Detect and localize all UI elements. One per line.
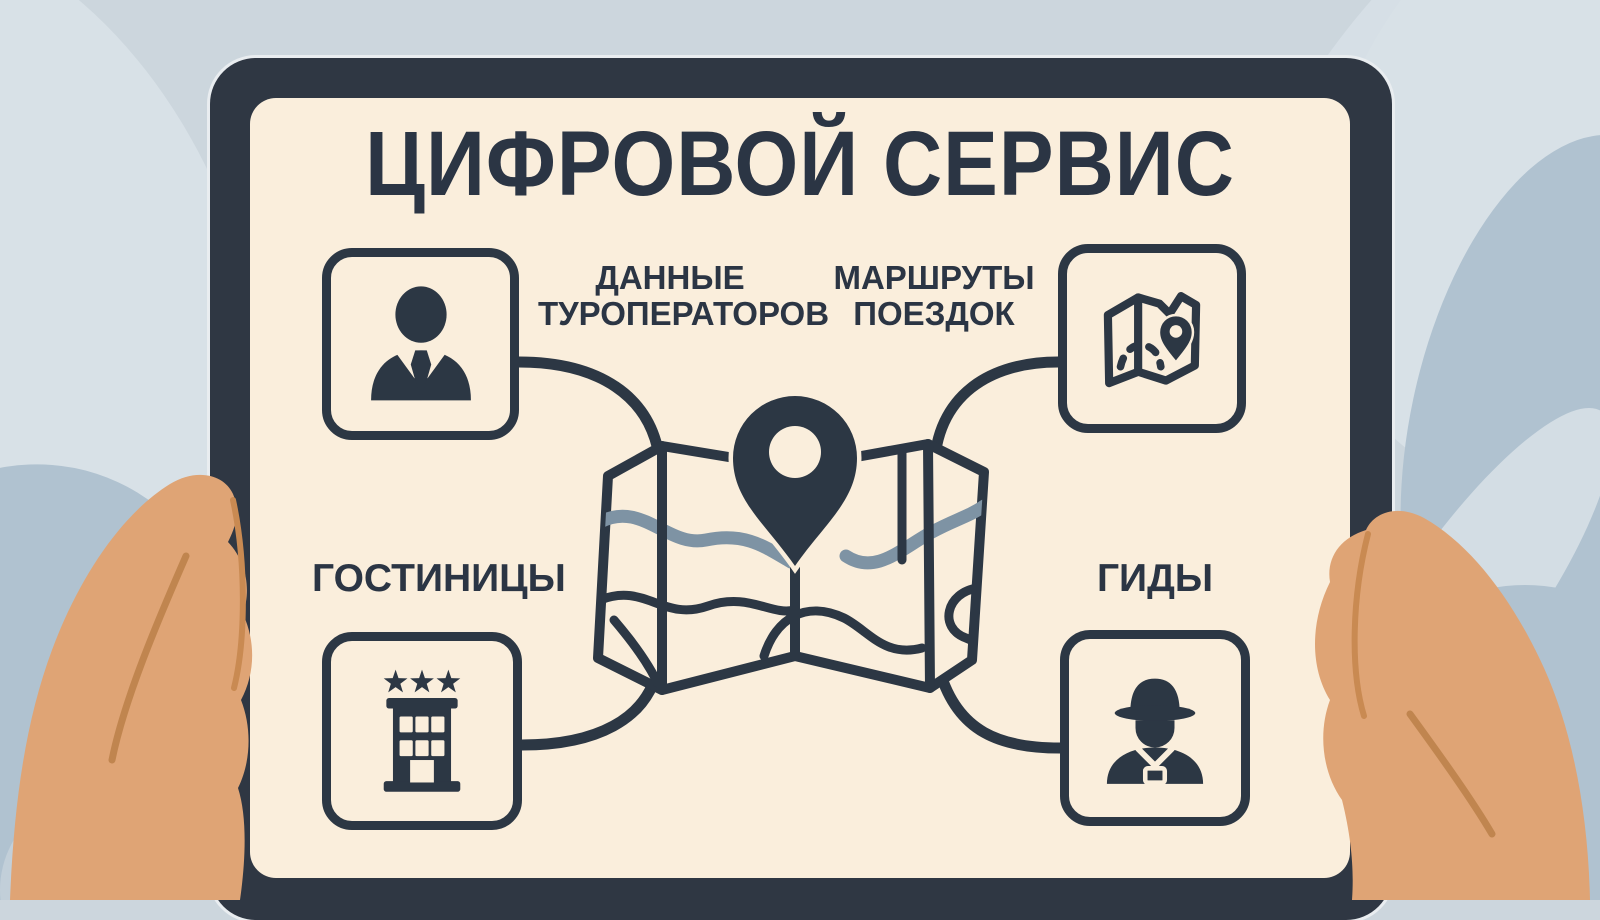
node-box-trip-routes [1058,244,1246,433]
hotel-door [410,760,434,782]
node-box-tour-operators [322,248,519,440]
label-trip-routes: МАРШРУТЫ ПОЕЗДОК [814,260,1054,333]
label-line: ГОСТИНИЦЫ [312,558,532,601]
label-line: МАРШРУТЫ [814,260,1054,296]
label-line: ГИДЫ [1045,558,1265,601]
label-line: ДАННЫЕ [538,260,802,296]
businessman-icon [357,280,485,408]
hotel-stars [384,670,461,693]
tour-guide-icon [1090,663,1220,793]
label-hotels: ГОСТИНИЦЫ [312,558,532,601]
node-box-guides [1060,630,1250,826]
page-title: ЦИФРОВОЙ СЕРВИС [250,112,1350,217]
node-box-hotels [322,632,522,830]
label-line: ПОЕЗДОК [814,296,1054,332]
map-route-pin-icon [1089,276,1215,402]
label-line: ТУРОПЕРАТОРОВ [538,296,802,332]
illustration-stage: ЦИФРОВОЙ СЕРВИС [0,0,1600,900]
guide-badge [1145,768,1165,782]
label-tour-operators: ДАННЫЕ ТУРОПЕРАТОРОВ [538,260,802,333]
label-guides: ГИДЫ [1045,558,1265,601]
hotel-building-stars-icon [356,665,488,797]
